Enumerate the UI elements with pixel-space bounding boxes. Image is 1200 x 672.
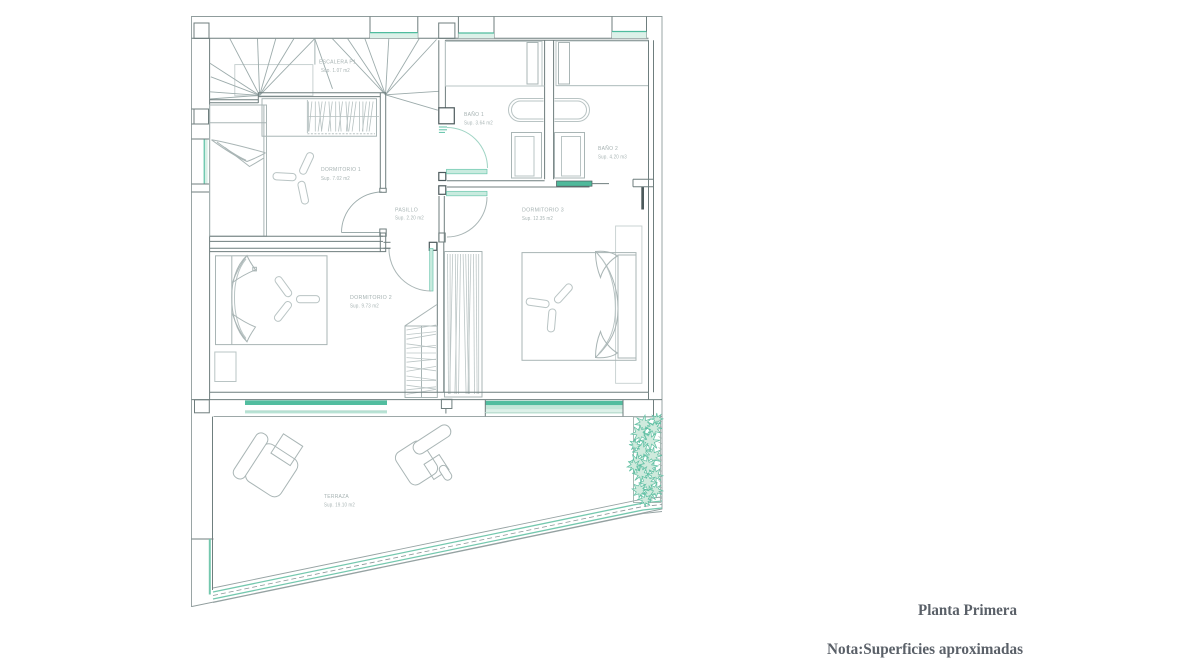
svg-text:DORMITORIO 1: DORMITORIO 1 [321, 167, 361, 173]
svg-text:Sup. 19.10 m2: Sup. 19.10 m2 [324, 503, 355, 509]
svg-text:Planta Primera: Planta Primera [918, 602, 1017, 619]
svg-text:PASILLO: PASILLO [395, 208, 418, 214]
svg-text:ESCALERA P1: ESCALERA P1 [319, 60, 356, 66]
svg-text:TERRAZA: TERRAZA [324, 494, 349, 500]
svg-text:Nota:Superficies aproximadas: Nota:Superficies aproximadas [827, 641, 1023, 658]
svg-text:Sup. 3.64 m2: Sup. 3.64 m2 [464, 121, 493, 127]
svg-text:Sup. 4.20 m3: Sup. 4.20 m3 [598, 155, 627, 161]
svg-text:Sup. 2.20 m2: Sup. 2.20 m2 [395, 216, 424, 222]
svg-text:Sup. 7.02 m2: Sup. 7.02 m2 [321, 176, 350, 182]
svg-text:BAÑO 1: BAÑO 1 [464, 111, 484, 118]
svg-text:DORMITORIO 2: DORMITORIO 2 [350, 295, 392, 301]
svg-text:Sup. 12.35 m2: Sup. 12.35 m2 [522, 216, 553, 222]
svg-text:BAÑO 2: BAÑO 2 [598, 145, 618, 152]
svg-text:DORMITORIO 3: DORMITORIO 3 [522, 208, 564, 214]
svg-text:Sup. 9.73 m2: Sup. 9.73 m2 [350, 304, 379, 310]
svg-text:Sup. 1.07 m2: Sup. 1.07 m2 [321, 68, 350, 74]
